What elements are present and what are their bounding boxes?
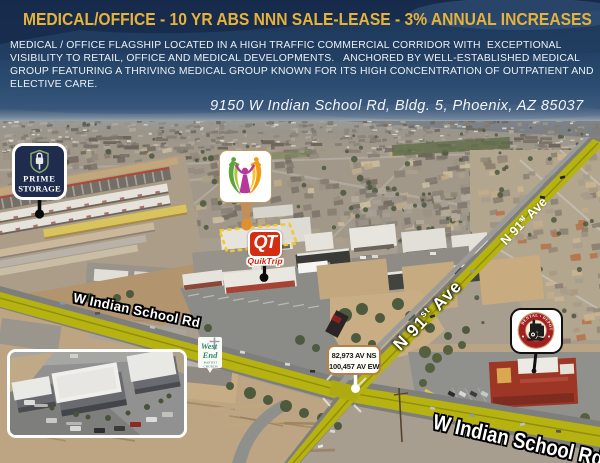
svg-text:End: End: [202, 350, 218, 360]
svg-text:CHURCH: CHURCH: [203, 365, 218, 369]
